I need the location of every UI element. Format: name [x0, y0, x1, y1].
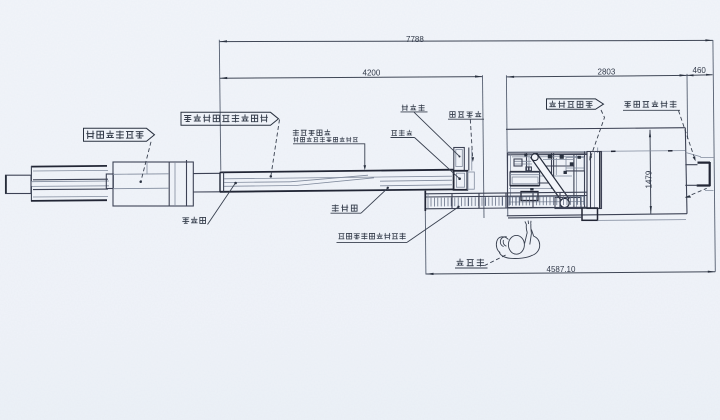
svg-text:2803: 2803: [598, 68, 616, 77]
svg-text:1479: 1479: [644, 170, 653, 188]
svg-text:460: 460: [693, 66, 707, 75]
svg-text:4587.10: 4587.10: [547, 265, 576, 274]
svg-text:7788: 7788: [406, 35, 424, 44]
svg-text:4200: 4200: [363, 69, 381, 78]
